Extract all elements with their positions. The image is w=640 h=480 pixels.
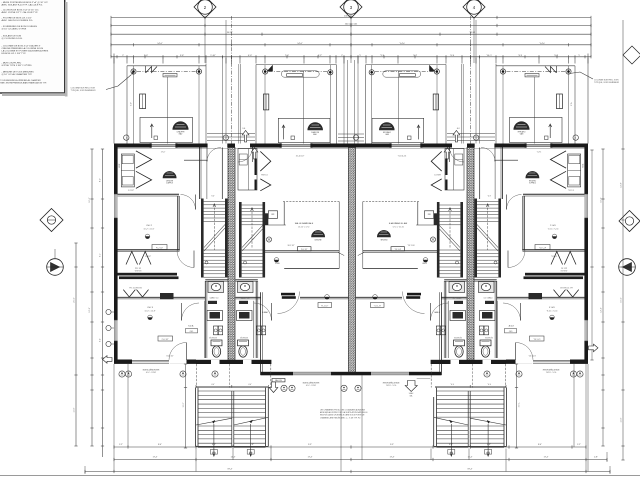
svg-text:17'-4": 17'-4" [544,457,549,459]
svg-text:TYPIQUE, VOIR INGÉNIEUR: TYPIQUE, VOIR INGÉNIEUR [594,81,620,84]
svg-text:CH. 2: CH. 2 [146,225,152,227]
svg-text:AVEC CALCULS FOURNIS P.G.: AVEC CALCULS FOURNIS P.G. [2,19,34,22]
svg-text:PAR L'ENTREPRENEUR AVANT FABRI: PAR L'ENTREPRENEUR AVANT FABRICATION TYP… [0,82,47,85]
svg-text:1: 1 [126,138,127,140]
svg-text:12'-2": 12'-2" [601,307,603,312]
svg-text:9'-9": 9'-9" [308,444,312,446]
svg-text:13'-10" x 17'-1": 13'-10" x 17'-1" [298,226,310,228]
svg-text:S.EAU: S.EAU [262,311,268,314]
svg-text:3'-0": 3'-0" [131,102,133,106]
svg-text:40'-0" - 1/2947: 40'-0" - 1/2947 [306,385,316,387]
svg-text:11'-2": 11'-2" [183,402,185,407]
svg-text:PPL 1/2: PPL 1/2 [135,268,141,270]
svg-text:30'-2 1/2": 30'-2 1/2" [287,245,295,247]
svg-text:12'-2": 12'-2" [89,307,91,312]
svg-text:PL-2 1/2": PL-2 1/2" [162,339,169,341]
svg-text:87'-4": 87'-4" [468,469,473,471]
svg-text:PL-2 1/2": PL-2 1/2" [321,305,328,307]
svg-text:MUR À DÉMONTER: MUR À DÉMONTER [303,382,320,385]
svg-text:4'-0": 4'-0" [248,55,252,57]
svg-text:4'-0": 4'-0" [211,384,215,386]
svg-text:AVEC ISOLANT R-24 TYP. CALCULÉ: AVEC ISOLANT R-24 TYP. CALCULÉ P.G. [2,4,44,7]
svg-text:LES CHAMBRES FROID, DES LOCATA: LES CHAMBRES FROID, DES LOCATAIRES AURA … [320,409,366,412]
svg-text:4'-0": 4'-0" [248,384,252,386]
svg-text:8'-4": 8'-4" [538,444,542,446]
svg-text:17'-4": 17'-4" [308,457,313,459]
svg-text:5'-2 1/2": 5'-2 1/2" [128,190,135,192]
svg-text:CER.: CER. [190,331,194,333]
svg-text:14'-0": 14'-0" [297,43,303,45]
svg-text:5'-2": 5'-2" [318,55,322,57]
svg-text:PPL 1/2 VESTON: PPL 1/2 VESTON [129,287,142,289]
svg-text:9'-9": 9'-9" [390,444,394,446]
svg-text:CHAMBRE, AIRE RELIÉE AVEC L +: CHAMBRE, AIRE RELIÉE AVEC L + % DE TYP. … [320,416,361,419]
svg-text:10'-6": 10'-6" [89,197,91,202]
svg-text:RELEVÉ LAISSE UN ESPACE LIBRE: RELEVÉ LAISSE UN ESPACE LIBRE SOUS PORTE… [320,414,365,417]
svg-text:11'-4": 11'-4" [231,457,236,459]
svg-text:15'-0": 15'-0" [621,297,623,302]
svg-text:11'-6": 11'-6" [74,407,76,412]
svg-text:SALLE FAMILIALE: SALLE FAMILIALE [295,222,314,225]
svg-text:1'-2": 1'-2" [577,444,581,446]
svg-text:131'-10": 131'-10" [344,15,352,17]
svg-text:VESTON: VESTON [135,270,142,272]
svg-text:9'-0": 9'-0" [211,196,215,198]
svg-text:@ CLOISONS S.D.B.: @ CLOISONS S.D.B. [2,38,23,40]
svg-text:PL-2 1/2": PL-2 1/2" [156,247,163,249]
svg-text:S.E.: S.E. [242,128,246,130]
svg-text:8'-4": 8'-4" [158,444,162,446]
svg-text:14'-0": 14'-0" [157,43,163,45]
svg-text:1'-10": 1'-10" [210,55,216,57]
svg-text:102'-0": 102'-0" [345,24,352,26]
svg-text:7'-0": 7'-0" [285,55,289,57]
svg-text:10'-2" x 11'-6": 10'-2" x 11'-6" [144,228,155,230]
svg-text:40'-0" - 1/2947: 40'-0" - 1/2947 [146,372,156,374]
svg-text:1'-2": 1'-2" [119,444,123,446]
svg-text:EN BOIS LVL 1 3/4" TYP.: EN BOIS LVL 1 3/4" TYP. [2,53,27,55]
svg-text:10'-6": 10'-6" [601,197,603,202]
svg-text:D'APPUI: D'APPUI [166,182,173,185]
svg-text:11'-6": 11'-6" [621,417,623,422]
svg-text:@ 16" C/C AU CHANTIER TYP.: @ 16" C/C AU CHANTIER TYP. [2,73,33,76]
svg-text:PDR 1/2: PDR 1/2 [261,174,267,176]
svg-text:11'-4": 11'-4" [468,457,473,459]
svg-text:87'-4": 87'-4" [228,469,233,471]
svg-text:9'-4": 9'-4" [100,338,102,342]
svg-text:4'-6": 4'-6" [449,444,453,446]
svg-text:MUR À DÉMONTER: MUR À DÉMONTER [143,369,160,372]
svg-text:17'-4": 17'-4" [153,457,158,459]
svg-text:GYPSE TYPE X 5/8" 2 CÔTÉS: GYPSE TYPE X 5/8" 2 CÔTÉS [2,64,33,67]
svg-text:8'-10 1/2": 8'-10 1/2" [166,356,174,358]
svg-text:6'-1": 6'-1" [100,253,102,257]
svg-text:VEST.: VEST. [119,163,121,168]
svg-text:S.D.B.: S.D.B. [188,326,194,328]
svg-text:CENDRE: CENDRE [314,240,322,242]
svg-text:@ 16" C/C AVEC GYPSE: @ 16" C/C AVEC GYPSE [2,27,27,30]
svg-text:21'-0": 21'-0" [74,297,76,302]
svg-text:15'-10 1/2": 15'-10 1/2" [296,156,305,158]
svg-text:8'-0": 8'-0" [100,178,102,182]
svg-text:CH. 3: CH. 3 [147,307,153,309]
svg-text:4'-6": 4'-6" [250,444,254,446]
svg-text:17'-0": 17'-0" [161,151,166,153]
svg-text:TYPIQUE, VOIR INGÉNIEUR: TYPIQUE, VOIR INGÉNIEUR [71,89,97,92]
svg-text:AVEC GYPSE 1/2" T. CALCULÉ TYP: AVEC GYPSE 1/2" T. CALCULÉ TYP. [2,11,39,14]
svg-text:10'-0" x 10'-8": 10'-0" x 10'-8" [144,310,155,312]
svg-text:14'-8": 14'-8" [621,182,623,187]
svg-text:5'-6": 5'-6" [180,55,184,57]
svg-text:4'-6": 4'-6" [212,444,216,446]
svg-text:2'-8": 2'-8" [594,457,598,459]
svg-text:17'-4": 17'-4" [390,457,395,459]
svg-text:7'-0": 7'-0" [144,55,148,57]
svg-text:PL-2 1/2": PL-2 1/2" [301,249,308,251]
svg-text:50'-11": 50'-11" [227,32,234,34]
svg-text:4'-6": 4'-6" [487,444,491,446]
svg-text:AIRE BIEN AJUSTÉE POUR LA VENT: AIRE BIEN AJUSTÉE POUR LA VENTILATION NA… [320,411,368,414]
